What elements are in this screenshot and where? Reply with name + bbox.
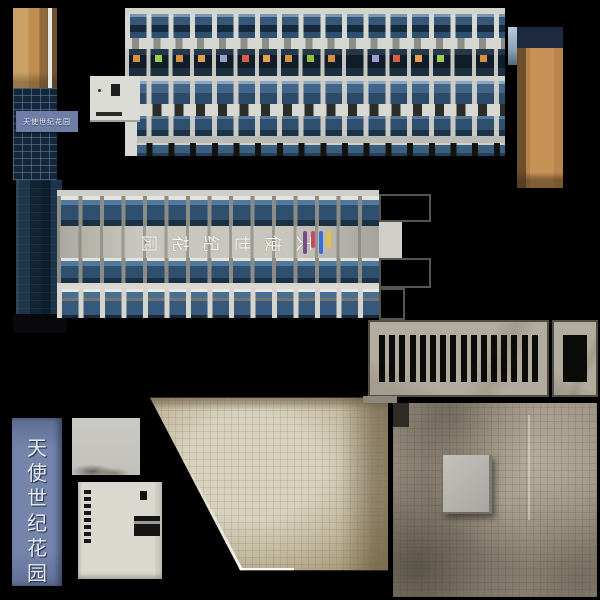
facade-gray-band — [125, 136, 505, 143]
panel-dash — [84, 511, 91, 515]
middle-window-row-1 — [57, 196, 379, 226]
tower-sign-text: 天使世纪花园 — [23, 117, 71, 127]
facade-accent-tile — [393, 55, 400, 62]
vertical-sign-chars: 天使世纪花园 — [12, 436, 62, 586]
middle-window-row-3 — [57, 289, 379, 318]
panel-dash-column — [84, 490, 91, 546]
facade-accent-tile — [263, 55, 270, 62]
tower-glass-slab — [16, 180, 62, 316]
panel-dash — [84, 518, 91, 522]
trapezoid-slant-edge — [150, 397, 244, 574]
middle-window-row-2 — [57, 258, 379, 283]
grill-narrow-slots — [563, 335, 587, 382]
facade-window-row-5 — [125, 143, 505, 156]
building-texture-atlas: 天使世纪花园 园花纪世使天 — [0, 0, 600, 600]
facade-accent-tile — [155, 55, 162, 62]
grill-wide — [368, 320, 549, 397]
top-facade-texture — [125, 8, 505, 156]
grill-slot — [481, 335, 487, 382]
protrusion-vent-bar — [96, 112, 122, 116]
logo-stroke — [319, 231, 323, 254]
facade-accent-tile — [176, 55, 183, 62]
panel-dash — [84, 532, 91, 536]
panel-vent — [134, 516, 160, 536]
facade-divider-band-1 — [125, 38, 505, 49]
facade-window-row-1 — [125, 14, 505, 38]
grill-slot — [532, 335, 538, 382]
band-character: 使 — [262, 235, 287, 252]
facade-accent-tile — [480, 55, 487, 62]
grill-narrow — [552, 320, 598, 397]
facade-logo — [303, 228, 339, 256]
sign-character: 园 — [12, 561, 62, 586]
panel-dash — [84, 490, 91, 494]
facade-accent-row — [125, 49, 505, 76]
facade-window-row-4 — [125, 116, 505, 136]
logo-stroke — [327, 231, 331, 248]
sign-character: 使 — [12, 461, 62, 486]
gray-wall-patch — [72, 418, 140, 475]
middle-calligraphy-band: 园花纪世使天 — [57, 226, 379, 258]
middle-outline-box-3 — [379, 288, 405, 320]
ground-box — [443, 455, 492, 514]
grill-slot — [399, 335, 405, 382]
facade-accent-tile — [133, 55, 140, 62]
cream-door-panel — [78, 482, 162, 579]
tower-window-grid — [13, 88, 57, 180]
middle-outline-box-1 — [379, 194, 431, 222]
panel-dash — [84, 539, 91, 543]
grill-slot — [501, 335, 507, 382]
facade-window-row-3 — [125, 81, 505, 104]
panel-dash — [84, 525, 91, 529]
vertical-sign: 天使世纪花园 — [12, 418, 62, 586]
facade-accent-tile — [220, 55, 227, 62]
grill-slot — [461, 335, 467, 382]
facade-accent-tile — [198, 55, 205, 62]
middle-facade-texture: 园花纪世使天 — [57, 190, 379, 318]
ground-light-line — [528, 415, 530, 520]
panel-small-window — [140, 491, 147, 500]
facade-accent-tile — [372, 55, 379, 62]
grill-slot — [581, 335, 587, 382]
protrusion-window — [111, 84, 120, 96]
square-ground-texture — [393, 403, 597, 597]
grill-slot — [420, 335, 426, 382]
blue-sliver-strip — [508, 27, 517, 65]
grill-wide-slots — [379, 335, 538, 382]
middle-outline-box-2 — [379, 258, 431, 288]
ground-corner-patch — [393, 403, 409, 427]
tower-sign-band: 天使世纪花园 — [16, 111, 78, 132]
grill-slot — [430, 335, 436, 382]
band-character: 园 — [138, 235, 163, 252]
facade-accent-tile — [328, 55, 335, 62]
middle-right-white-block — [379, 220, 402, 258]
panel-dash — [84, 504, 91, 508]
grill-slot — [410, 335, 416, 382]
small-gray-bar — [363, 396, 397, 403]
grill-slot — [522, 335, 528, 382]
panel-dash — [84, 497, 91, 501]
facade-protrusion-block — [90, 76, 140, 122]
grill-slot — [389, 335, 395, 382]
grill-slot — [511, 335, 517, 382]
sign-character: 天 — [12, 436, 62, 461]
facade-slot-band — [125, 104, 505, 116]
facade-accent-tile — [415, 55, 422, 62]
sign-character: 世 — [12, 486, 62, 511]
grill-slot — [379, 335, 385, 382]
grill-slot — [440, 335, 446, 382]
grill-slot — [491, 335, 497, 382]
sign-character: 花 — [12, 536, 62, 561]
trapezoid-ground-texture — [140, 396, 390, 572]
facade-accent-tile — [242, 55, 249, 62]
sign-character: 纪 — [12, 511, 62, 536]
band-character: 世 — [231, 235, 256, 252]
logo-stroke — [311, 231, 315, 248]
grill-slot — [450, 335, 456, 382]
grill-slot — [471, 335, 477, 382]
facade-accent-tile — [437, 55, 444, 62]
band-character: 纪 — [200, 235, 225, 252]
facade-accent-tile — [285, 55, 292, 62]
panel-vent-line — [134, 521, 160, 524]
band-character: 花 — [169, 235, 194, 252]
facade-accent-tile — [307, 55, 314, 62]
trapezoid-bottom-edge — [236, 568, 294, 571]
protrusion-dot — [98, 89, 101, 92]
logo-stroke — [303, 231, 307, 254]
right-tan-panel — [517, 27, 563, 188]
